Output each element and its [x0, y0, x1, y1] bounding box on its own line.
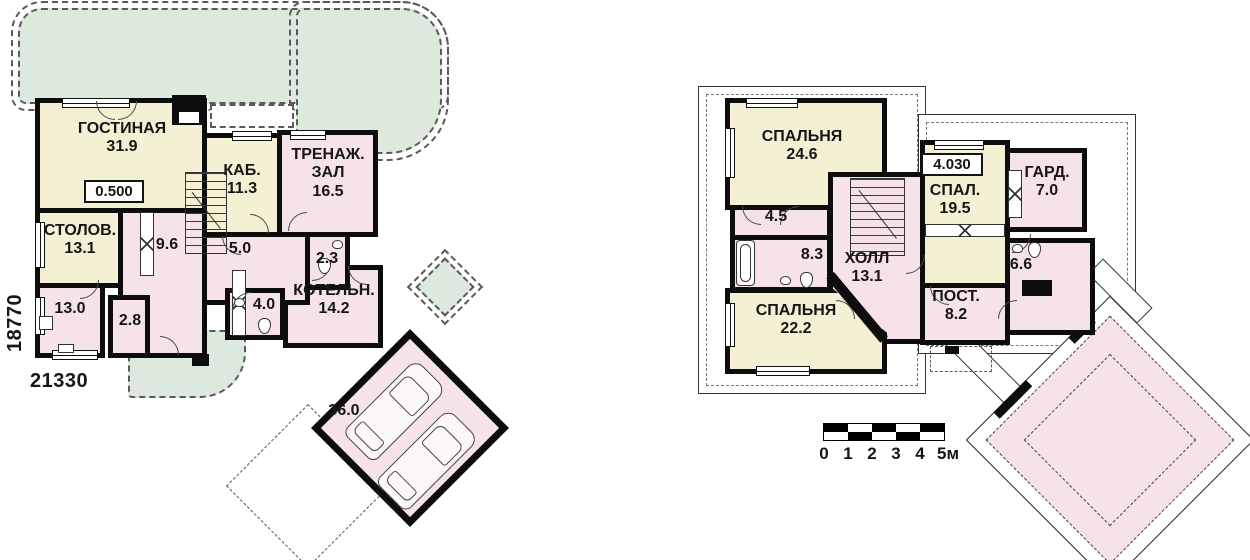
terrace-step — [210, 104, 294, 128]
window — [232, 131, 272, 141]
car-rear-window — [385, 470, 418, 503]
balcony-dashed — [930, 346, 992, 372]
room-label-kitchen: 13.0 — [54, 300, 85, 318]
room-label-corridor: 5.0 — [229, 240, 251, 258]
dimension-height: 18770 — [4, 294, 27, 352]
sink — [780, 276, 791, 285]
window — [934, 140, 984, 150]
room-label-corridor-45: 4.5 — [765, 208, 787, 226]
closet — [1008, 170, 1022, 218]
room-label-wardrobe: ГАРД.7.0 — [1024, 164, 1069, 201]
room-label-garage: 36.0 — [328, 402, 359, 420]
room-label-bath-83: 8.3 — [801, 246, 823, 264]
room-label-storage: 2.8 — [119, 312, 141, 330]
scale-bar-bottom-row — [824, 432, 944, 440]
bathtub — [736, 240, 755, 286]
kitchen-sink — [58, 344, 74, 353]
elevation-mark-floor1: 0.500 — [84, 180, 144, 203]
window — [746, 98, 798, 108]
room-label-gym: ТРЕНАЖ. ЗАЛ16.5 — [281, 146, 375, 201]
room-label-bath: 4.0 — [253, 296, 275, 314]
second-floor-plan: СПАЛЬНЯ24.6 4.5 8.3 ХОЛЛ13.1 СПАЛЬНЯ22.2… — [630, 0, 1250, 560]
fireplace-opening — [179, 112, 199, 123]
chimney-block — [1022, 280, 1052, 296]
door-mat — [192, 354, 209, 366]
scale-label-5: 5м — [937, 444, 959, 464]
side-porch — [415, 257, 474, 316]
scale-label-0: 0 — [819, 444, 828, 464]
sink — [1012, 244, 1023, 253]
scale-label-4: 4 — [915, 444, 924, 464]
room-label-study: КАБ.11.3 — [223, 162, 260, 199]
scale-label-2: 2 — [867, 444, 876, 464]
stairs-second-floor — [850, 178, 905, 256]
room-label-bedroom-222: СПАЛЬНЯ22.2 — [756, 302, 837, 339]
sink — [234, 298, 245, 307]
closet — [140, 212, 154, 276]
sink — [332, 240, 343, 249]
room-label-bedroom-195: СПАЛ.19.5 — [930, 182, 980, 219]
room-label-bedroom-246: СПАЛЬНЯ24.6 — [762, 128, 843, 165]
room-label-hall: ХОЛЛ13.1 — [845, 250, 890, 287]
car-windshield — [421, 423, 465, 467]
room-label-bath-66: 6.6 — [1010, 256, 1032, 274]
scale-bar: 0 1 2 3 4 5м — [823, 423, 945, 441]
dimension-width: 21330 — [30, 370, 88, 393]
room-label-living: ГОСТИНАЯ31.9 — [78, 120, 166, 157]
scale-bar-top-row — [824, 424, 944, 432]
car-windshield — [388, 374, 432, 418]
elevation-mark-floor2: 4.030 — [921, 153, 983, 176]
first-floor-plan: ГОСТИНАЯ31.9 0.500 СТОЛОВ.13.1 9.6 КАБ.1… — [0, 0, 630, 560]
room-label-wc: 2.3 — [316, 250, 338, 268]
chimney-mark — [945, 346, 959, 354]
window — [725, 128, 735, 178]
room-label-laundry: ПОСТ.8.2 — [932, 288, 980, 325]
window — [290, 130, 326, 140]
stairs-first-floor — [185, 172, 227, 254]
room-label-dining: СТОЛОВ.13.1 — [44, 222, 116, 259]
room-label-boiler: КОТЕЛЬН.14.2 — [293, 282, 374, 319]
stove — [39, 316, 53, 330]
scale-label-1: 1 — [843, 444, 852, 464]
window — [756, 366, 810, 376]
room-label-hall: 9.6 — [156, 236, 178, 254]
closet — [925, 224, 1005, 237]
window — [725, 303, 735, 347]
scale-label-3: 3 — [891, 444, 900, 464]
floor-plans-canvas: ГОСТИНАЯ31.9 0.500 СТОЛОВ.13.1 9.6 КАБ.1… — [0, 0, 1250, 560]
car-rear-window — [352, 420, 385, 453]
